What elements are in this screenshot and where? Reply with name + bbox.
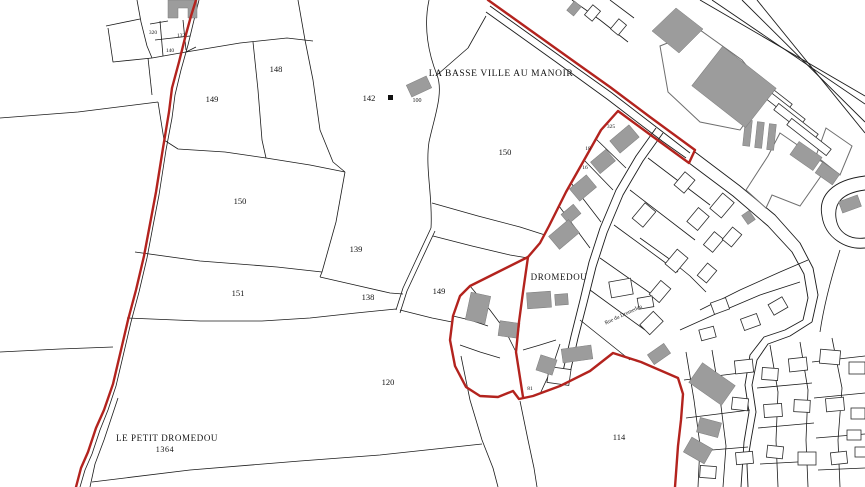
place-name-label: LA BASSE VILLE AU MANOIR — [429, 69, 574, 79]
parcel-boundary-line — [298, 0, 345, 172]
zone-boundary-red-line — [516, 257, 528, 397]
parcel-boundary-line — [127, 309, 396, 321]
building-footprint — [567, 1, 582, 16]
house-footprint — [768, 297, 788, 315]
house-footprint — [699, 326, 716, 341]
building-footprint — [555, 294, 569, 306]
parcel-boundary-line — [106, 19, 140, 26]
parcel-number-label: 114 — [613, 432, 626, 442]
house-footprint — [674, 172, 695, 193]
building-footprint — [839, 195, 862, 213]
parcel-number-label: 81 — [527, 386, 533, 392]
building-footprint — [689, 363, 736, 406]
parcel-number-label: 100 — [413, 98, 422, 104]
parcel-boundary-line — [150, 21, 168, 24]
parcel-boundary-line — [158, 102, 345, 172]
house-footprint — [740, 313, 760, 330]
parcel-boundary-line — [758, 423, 814, 428]
house-footprint — [722, 227, 741, 247]
parcel-number-label: 149 — [206, 94, 219, 104]
building-footprint — [406, 76, 431, 97]
parcel-boundary-line — [520, 401, 537, 487]
parcel-boundary-line — [0, 347, 113, 352]
house-footprint — [825, 397, 844, 412]
parcel-boundary-line — [92, 444, 482, 482]
building-footprint — [561, 345, 593, 363]
building-footprint — [591, 149, 616, 173]
building-footprint — [465, 292, 490, 324]
house-footprint — [762, 367, 779, 380]
house-footprint — [687, 208, 709, 231]
house-footprint — [665, 249, 688, 273]
parcel-boundary-line — [820, 250, 840, 332]
parcel-boundary-line — [108, 28, 152, 62]
parcel-number-label: 139 — [350, 244, 363, 254]
parcel-boundary-line — [0, 102, 158, 118]
parcel-boundary-line — [396, 228, 431, 310]
parcel-boundary-line — [433, 236, 528, 258]
house-footprint — [830, 451, 847, 465]
parcel-boundary-line — [400, 231, 435, 313]
parcel-number-label: 16 — [582, 165, 588, 171]
parcel-boundary-line — [437, 16, 486, 75]
house-footprint — [766, 445, 783, 459]
parcel-number-label: 138 — [362, 292, 375, 302]
building-footprint — [561, 204, 581, 223]
house-footprint — [710, 193, 734, 218]
house-footprint — [798, 452, 816, 465]
house-footprint — [788, 357, 807, 372]
house-footprint — [794, 400, 811, 413]
parcel-number-label: 140 — [166, 48, 175, 54]
parcel-number-label: 150 — [499, 147, 512, 157]
parcel-boundary-line — [80, 0, 199, 487]
house-footprint — [849, 362, 865, 374]
parcel-boundary-line — [461, 356, 498, 487]
parcel-number-label: 120 — [382, 377, 395, 387]
zone-boundary-red-line — [76, 0, 196, 487]
parcel-number-label: 132 — [177, 33, 186, 39]
building-footprint — [647, 343, 670, 364]
cadastral-map: LA BASSE VILLE AU MANOIRDROMEDOULE PETIT… — [0, 0, 865, 487]
house-footprint — [819, 349, 840, 365]
parcel-boundary-line — [148, 58, 152, 95]
cadastral-map-page: LA BASSE VILLE AU MANOIRDROMEDOULE PETIT… — [0, 0, 865, 487]
place-name-label: LE PETIT DROMEDOU — [116, 433, 218, 443]
place-name-label: 1364 — [156, 445, 174, 454]
house-footprint — [847, 430, 861, 440]
parcel-boundary-line — [818, 468, 865, 470]
parcel-boundary-line — [460, 345, 500, 358]
house-footprint — [734, 359, 753, 374]
parcel-number-label: 320 — [149, 30, 158, 36]
parcel-number-label: 148 — [270, 64, 283, 74]
road-edge-line — [757, 0, 865, 133]
building-footprint — [549, 220, 580, 250]
house-footprint — [640, 311, 663, 334]
parcel-boundary-line — [186, 38, 313, 52]
building-footprint — [683, 437, 712, 464]
house-footprint — [609, 278, 633, 298]
parcel-boundary-line — [253, 42, 266, 158]
street-name-label: Rue du Dromedou — [604, 304, 644, 327]
house-footprint — [632, 203, 656, 227]
house-footprint — [610, 19, 626, 35]
parcel-boundary-line — [427, 0, 440, 228]
parcel-boundary-line — [135, 252, 322, 272]
point-symbol — [388, 95, 393, 100]
parcel-number-label: 149 — [433, 286, 446, 296]
house-footprint — [697, 263, 716, 283]
parcel-boundary-line — [160, 21, 163, 56]
parcel-boundary-line — [320, 172, 345, 277]
house-footprint — [851, 408, 865, 419]
parcel-number-label: 325 — [607, 124, 616, 130]
house-footprint — [731, 397, 748, 411]
building-footprint — [755, 122, 765, 149]
parcel-number-label: 151 — [232, 288, 245, 298]
house-footprint — [764, 403, 783, 417]
building-footprint — [526, 291, 551, 309]
parcel-number-label: 142 — [363, 93, 376, 103]
house-footprint — [700, 465, 717, 478]
place-name-label: DROMEDOU — [531, 272, 588, 282]
parcel-boundary-line — [432, 203, 545, 235]
parcel-boundary-line — [137, 0, 152, 58]
parcel-number-label: 150 — [234, 196, 247, 206]
house-footprint — [736, 451, 754, 464]
house-footprint — [710, 298, 729, 315]
parcel-boundary-line — [400, 310, 452, 322]
building-footprint — [696, 417, 721, 437]
parcel-boundary-line — [610, 0, 634, 18]
parcel-boundary-line — [523, 340, 556, 350]
house-footprint — [703, 232, 723, 253]
parcel-boundary-line — [757, 383, 812, 388]
house-footprint — [855, 447, 865, 457]
parcel-number-label: 18 — [585, 146, 591, 152]
building-footprint — [742, 210, 756, 224]
